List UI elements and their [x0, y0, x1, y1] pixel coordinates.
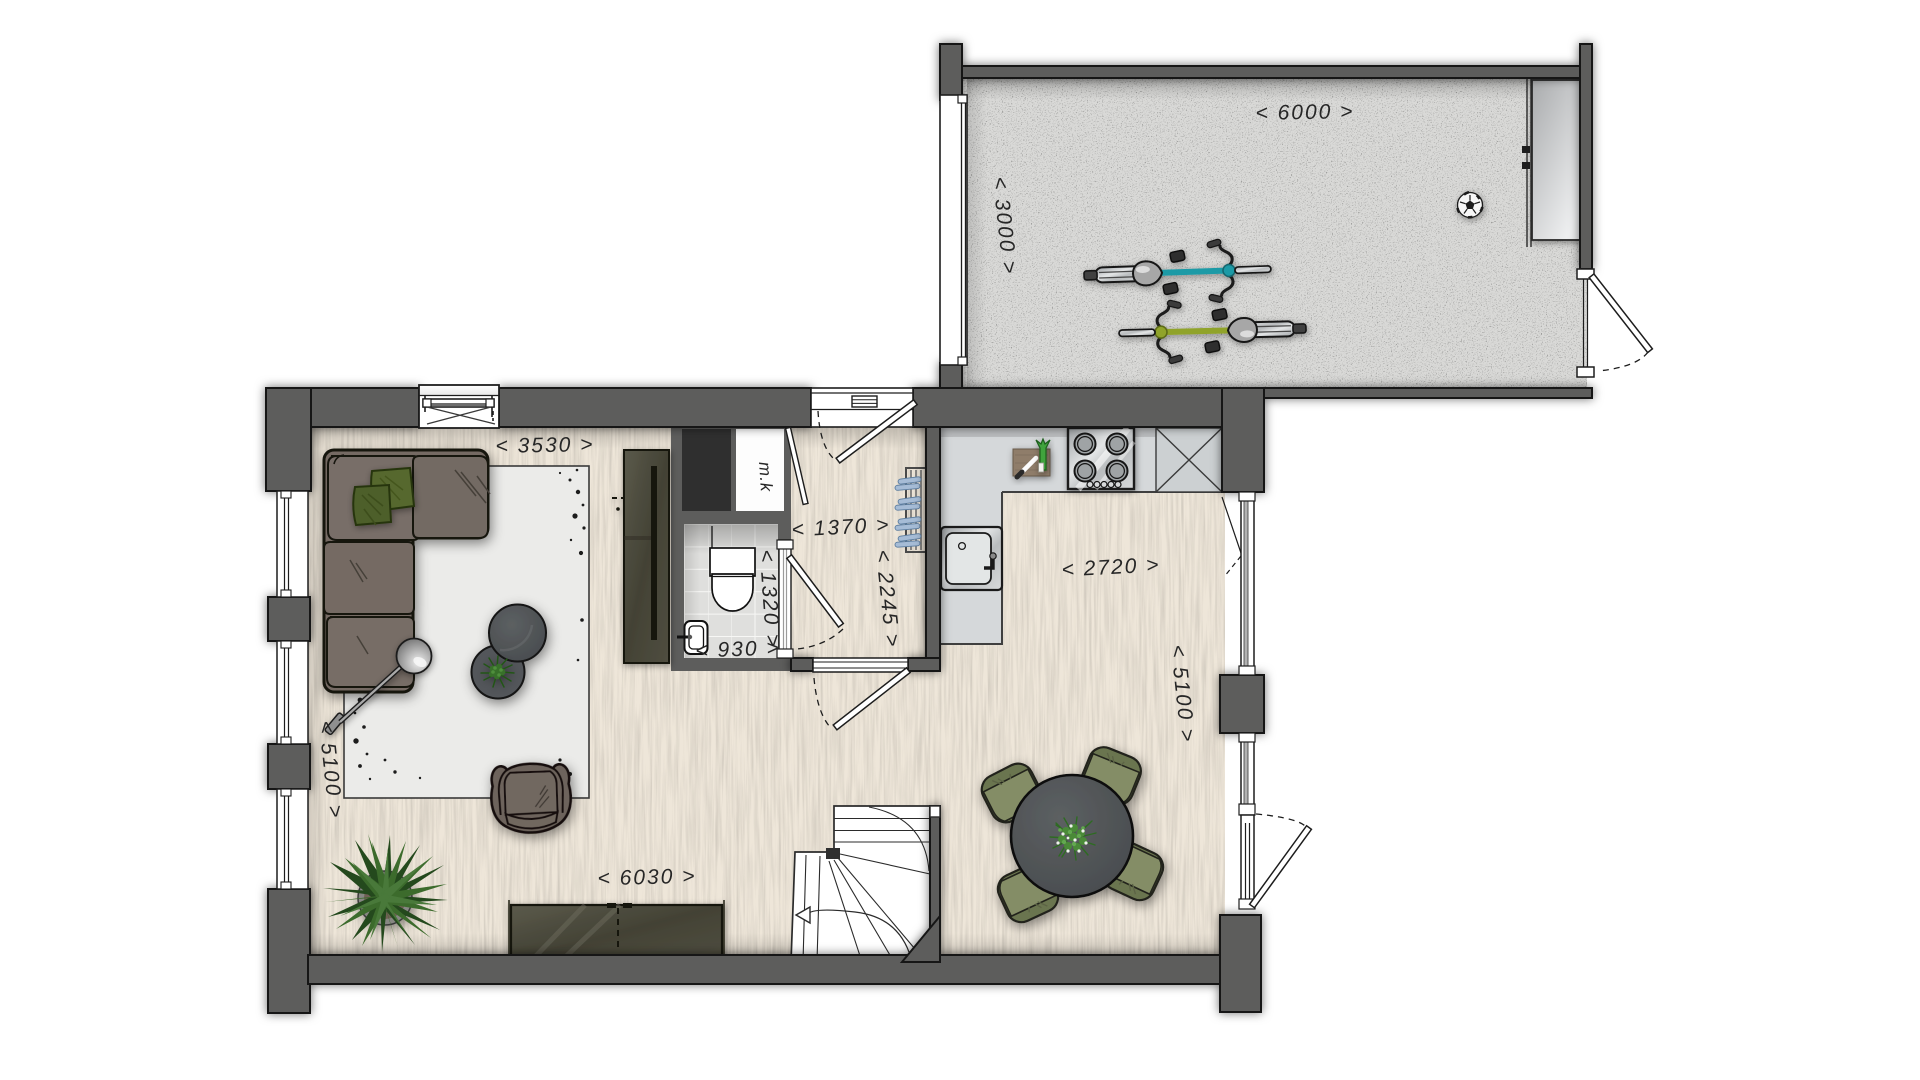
svg-text:m.k: m.k — [755, 461, 776, 493]
svg-text:< 6030 >: < 6030 > — [597, 865, 696, 891]
svg-text:< 930 >: < 930 > — [695, 637, 781, 663]
svg-text:< 6000 >: < 6000 > — [1255, 100, 1354, 125]
svg-text:< 3530 >: < 3530 > — [495, 433, 594, 458]
